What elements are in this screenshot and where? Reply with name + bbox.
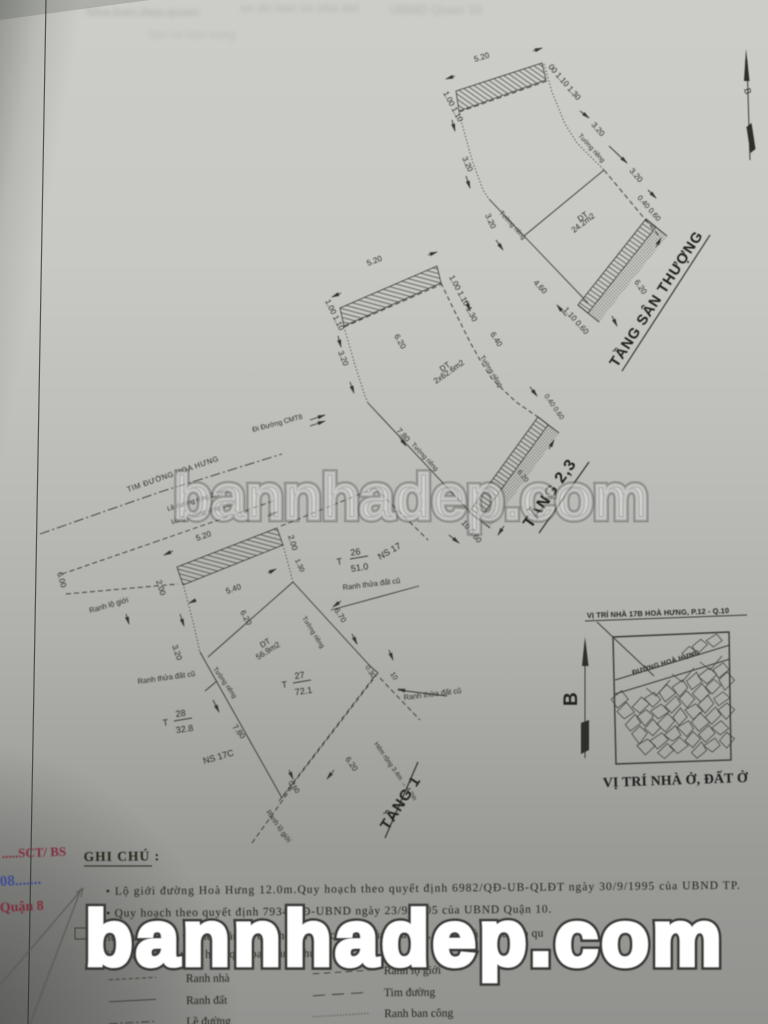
svg-text:0.60: 0.60	[286, 780, 300, 795]
svg-text:2x62.6m2: 2x62.6m2	[432, 358, 466, 386]
svg-text:3.20: 3.20	[589, 120, 606, 138]
svg-text:Tường riêng: Tường riêng	[478, 354, 503, 389]
svg-text:6.00: 6.00	[55, 571, 68, 589]
svg-text:6.20: 6.20	[238, 609, 254, 627]
svg-text:so do ban ve nha dat: so do ban ve nha dat	[240, 1, 359, 15]
svg-text:3.20: 3.20	[170, 644, 184, 662]
svg-text:B: B	[561, 692, 582, 706]
svg-text:VỊ TRÍ NHÀ Ở, ĐẤT Ở: VỊ TRÍ NHÀ Ở, ĐẤT Ở	[603, 769, 749, 790]
svg-text:N̶h̶a̶ ̶b̶a̶n̶ ̶d̶e̶p̶ ̶q̶u̶a̶: N̶h̶a̶ ̶b̶a̶n̶ ̶d̶e̶p̶ ̶q̶u̶a̶n̶	[85, 4, 202, 19]
svg-text:0.40 0.60: 0.40 0.60	[635, 193, 662, 223]
svg-text:32.8: 32.8	[175, 723, 194, 735]
svg-text:NS 17: NS 17	[376, 541, 403, 562]
svg-text:2.00: 2.00	[286, 534, 300, 552]
svg-text:0.30: 0.30	[363, 664, 376, 679]
svg-text:B: B	[742, 87, 753, 95]
svg-text:Lề đường: Lề đường	[186, 1015, 231, 1024]
svg-text:3.20: 3.20	[627, 166, 644, 184]
svg-text:Tường riêng: Tường riêng	[211, 666, 238, 700]
svg-text:Tim đường: Tim đường	[384, 987, 436, 999]
svg-text:1.30: 1.30	[293, 558, 305, 573]
svg-text:1.00 1.10 1.30: 1.00 1.10 1.30	[447, 274, 479, 324]
svg-text:T: T	[336, 556, 343, 567]
svg-text:4.60: 4.60	[532, 278, 550, 296]
svg-text:72.1: 72.1	[294, 685, 313, 697]
svg-text:6.20: 6.20	[632, 278, 649, 296]
svg-text:Ranh thửa đất cũ: Ranh thửa đất cũ	[403, 686, 462, 702]
svg-text:Ranh thửa đất cũ: Ranh thửa đất cũ	[137, 669, 196, 686]
svg-text:UBND Quan 10: UBND Quan 10	[390, 2, 482, 17]
svg-text:7.80: 7.80	[395, 426, 413, 444]
svg-text:26: 26	[350, 546, 361, 557]
svg-text:GHI CHÚ :: GHI CHÚ :	[83, 848, 160, 864]
svg-text:bannhadep.com: bannhadep.com	[85, 894, 725, 982]
svg-text:7.80: 7.80	[230, 723, 247, 741]
svg-text:T: T	[281, 679, 288, 690]
svg-text:T: T	[162, 717, 169, 728]
svg-text:6.70: 6.70	[332, 606, 348, 624]
svg-text:0.40 0.60: 0.40 0.60	[542, 393, 565, 421]
svg-text:Tường riêng: Tường riêng	[498, 210, 528, 242]
svg-text:NS 17C: NS 17C	[202, 747, 236, 765]
svg-text:08.......: 08.......	[0, 872, 42, 890]
svg-text:3.20: 3.20	[483, 212, 498, 230]
svg-text:3.20: 3.20	[336, 349, 350, 367]
svg-text:5.20: 5.20	[473, 50, 491, 64]
svg-text:Đi Đường CMT8: Đi Đường CMT8	[252, 414, 304, 434]
svg-text:bannhadep.com: bannhadep.com	[173, 461, 648, 533]
svg-text:6.20: 6.20	[343, 755, 360, 773]
svg-text:Tường riêng: Tường riêng	[300, 615, 325, 650]
svg-text:Ranh lộ giới: Ranh lộ giới	[264, 809, 292, 844]
svg-text:ban ve hien trang: ban ve hien trang	[150, 29, 235, 41]
svg-text:Quận 8: Quận 8	[0, 899, 44, 916]
svg-text:Ranh lộ giới: Ranh lộ giới	[88, 595, 130, 615]
svg-text:Ranh ban công: Ranh ban công	[384, 1007, 453, 1020]
svg-text:.....SCT/ BS: .....SCT/ BS	[2, 844, 67, 861]
svg-text:27: 27	[294, 670, 305, 681]
svg-text:2.00: 2.00	[154, 579, 168, 597]
svg-text:6.20: 6.20	[392, 333, 408, 351]
svg-text:28: 28	[175, 708, 186, 719]
svg-text:00 1.10 1.30: 00 1.10 1.30	[546, 62, 582, 102]
svg-text:10: 10	[388, 671, 398, 681]
svg-text:6.40: 6.40	[488, 330, 504, 348]
svg-text:51.0: 51.0	[350, 561, 369, 574]
svg-text:Tường riêng: Tường riêng	[577, 133, 607, 165]
svg-text:Ranh đất: Ranh đất	[186, 994, 228, 1007]
svg-text:3.20: 3.20	[460, 155, 475, 173]
svg-text:Ranh thửa đất cũ: Ranh thửa đất cũ	[342, 576, 401, 592]
svg-text:5.20: 5.20	[365, 254, 383, 268]
svg-text:5.40: 5.40	[225, 582, 243, 596]
